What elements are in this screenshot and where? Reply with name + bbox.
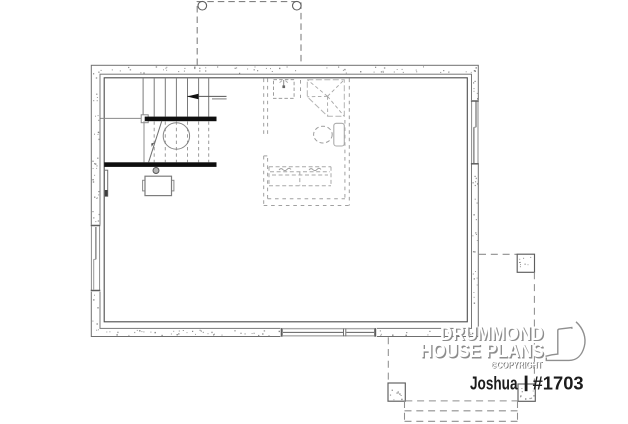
svg-text:©COPYRIGHT: ©COPYRIGHT xyxy=(491,360,543,370)
svg-text:#1703: #1703 xyxy=(533,372,584,393)
svg-text:Joshua: Joshua xyxy=(470,372,518,393)
svg-text:HOUSE PLANS: HOUSE PLANS xyxy=(420,341,544,362)
